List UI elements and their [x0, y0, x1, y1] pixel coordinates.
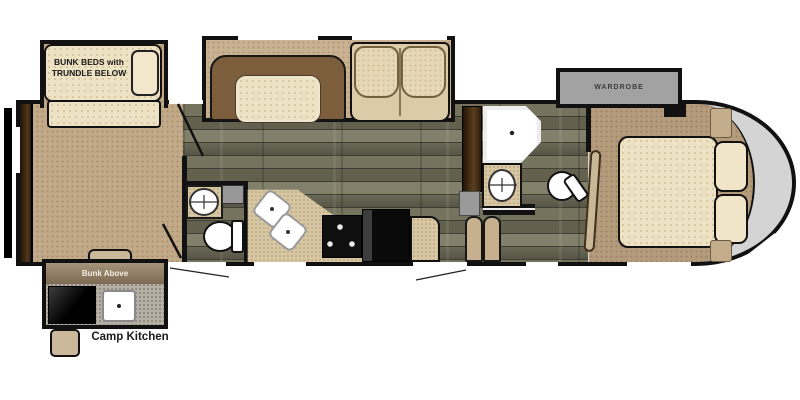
- camp-kitchen-step: [50, 329, 80, 357]
- entry-door-2-swing-line: [416, 270, 466, 280]
- bunk-bed-pillow: [131, 50, 159, 96]
- rear-bumper-bar: [4, 108, 12, 258]
- camp-kitchen-label: Camp Kitchen: [80, 331, 180, 347]
- nightstand-top: [710, 108, 732, 138]
- bedroom-step-1: [465, 216, 483, 262]
- trundle-bed: [47, 100, 161, 128]
- bottom-window-bath: [526, 262, 558, 266]
- living-slide-window-right: [352, 36, 447, 40]
- bed-pillow-bottom: [714, 194, 748, 244]
- entertainment-cabinet: [462, 106, 482, 192]
- master-sink: [488, 169, 516, 202]
- dinette-table: [236, 76, 320, 122]
- nightstand-bottom: [710, 240, 732, 262]
- bedroom-step-2: [483, 216, 501, 262]
- bunk-above-band: Bunk Above: [46, 263, 164, 284]
- rear-cabinet: [20, 104, 33, 262]
- bunk-room-door-opening: [169, 100, 203, 104]
- mid-bath-shelf: [222, 185, 244, 204]
- bedroom-wall-notch: [664, 104, 686, 117]
- mid-bath-sink: [189, 188, 219, 216]
- entry-door-1-swing-line: [170, 268, 229, 277]
- kitchen-end-cabinet: [410, 216, 440, 262]
- bunk-bed-label-line1: BUNK BEDS with: [46, 57, 132, 68]
- entry-door-opening-2: [413, 262, 467, 266]
- rear-wall-window: [16, 127, 20, 173]
- outdoor-fridge: [48, 286, 96, 324]
- entry-door-opening-1: [168, 262, 226, 266]
- bed-pillow-top: [714, 141, 748, 192]
- bunk-above-label: Bunk Above: [46, 263, 164, 284]
- bath-bedroom-wall: [586, 106, 591, 152]
- rv-floorplan: BUNK BEDS with TRUNDLE BELOW WARDROBE: [0, 0, 800, 400]
- sofa-cushion-right: [401, 46, 446, 98]
- bottom-window-kitchen: [254, 262, 306, 266]
- bed: [618, 136, 718, 248]
- bunk-bed-label-line2: TRUNDLE BELOW: [46, 68, 132, 79]
- pantry-cabinet: [459, 191, 480, 216]
- sofa-cushion-left: [354, 46, 399, 98]
- mid-bath-toilet-tank: [231, 220, 244, 253]
- mid-bath-right-wall: [244, 181, 248, 262]
- refrigerator: [362, 209, 410, 262]
- living-slide-window-left: [238, 36, 318, 40]
- wardrobe-label: WARDROBE: [560, 68, 678, 108]
- outdoor-sink: [102, 290, 136, 322]
- stove: [322, 215, 362, 258]
- bunk-bed-label: BUNK BEDS with TRUNDLE BELOW: [46, 57, 132, 93]
- bottom-window-bedroom: [627, 262, 691, 266]
